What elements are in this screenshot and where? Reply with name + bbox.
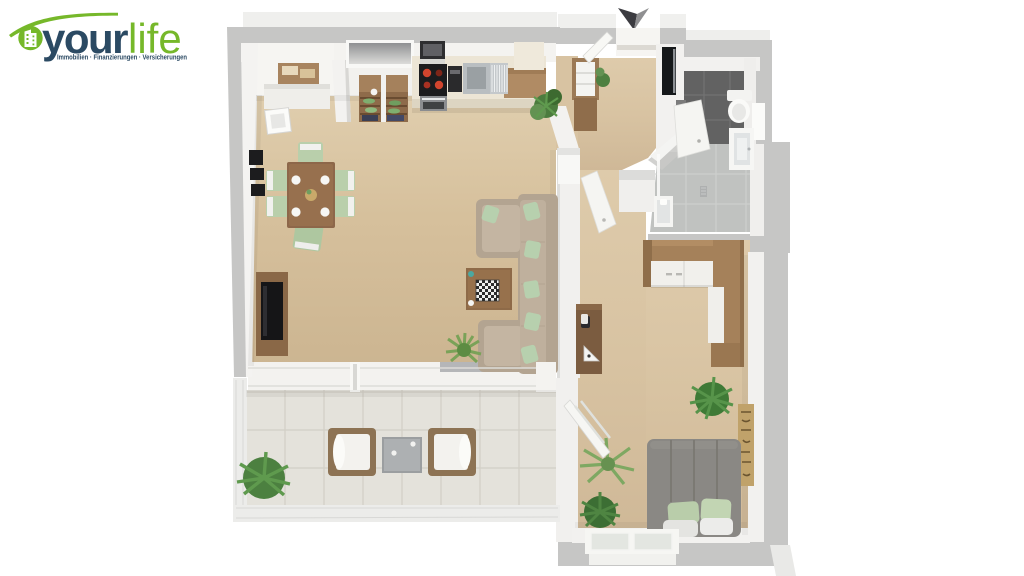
svg-text:Immobilien · Finanzierungen ·: Immobilien · Finanzierungen · Versicheru… bbox=[57, 53, 187, 62]
